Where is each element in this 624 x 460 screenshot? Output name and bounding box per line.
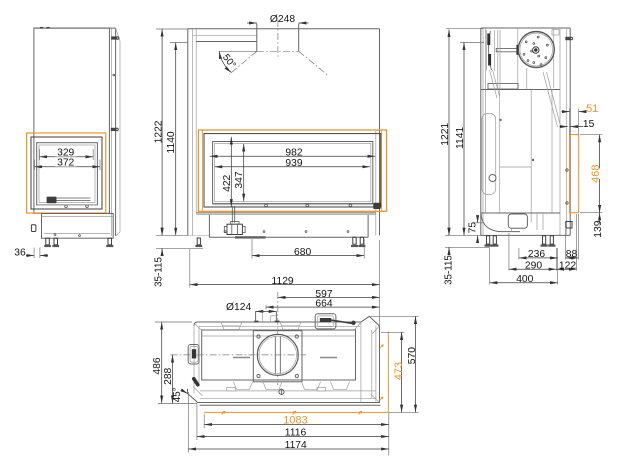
svg-text:288: 288 xyxy=(163,367,174,384)
svg-text:570: 570 xyxy=(407,347,418,364)
svg-text:290: 290 xyxy=(525,261,542,272)
svg-text:35-115: 35-115 xyxy=(444,255,455,285)
svg-text:1129: 1129 xyxy=(272,276,294,287)
svg-text:347: 347 xyxy=(234,171,245,188)
svg-text:Ø124: Ø124 xyxy=(226,302,251,313)
svg-text:1116: 1116 xyxy=(285,427,307,438)
svg-text:139: 139 xyxy=(593,220,604,237)
svg-text:1222: 1222 xyxy=(154,120,165,143)
svg-text:36: 36 xyxy=(14,247,26,258)
svg-text:372: 372 xyxy=(57,158,74,169)
svg-text:Ø248: Ø248 xyxy=(270,14,295,25)
svg-text:88: 88 xyxy=(566,249,578,260)
svg-text:236: 236 xyxy=(528,249,545,260)
svg-text:51: 51 xyxy=(586,103,598,115)
svg-text:400: 400 xyxy=(516,274,533,285)
svg-text:45°: 45° xyxy=(172,387,183,402)
svg-text:468: 468 xyxy=(590,165,602,183)
svg-text:982: 982 xyxy=(285,148,302,159)
svg-text:1083: 1083 xyxy=(283,414,307,426)
svg-text:122: 122 xyxy=(559,261,576,272)
svg-text:35-115: 35-115 xyxy=(154,257,165,287)
svg-text:75: 75 xyxy=(468,222,479,234)
svg-text:15: 15 xyxy=(583,119,595,130)
svg-text:664: 664 xyxy=(315,298,332,309)
svg-text:1140: 1140 xyxy=(166,131,177,153)
svg-text:1221: 1221 xyxy=(440,123,451,146)
svg-text:680: 680 xyxy=(294,247,311,258)
svg-text:486: 486 xyxy=(152,357,163,374)
svg-text:422: 422 xyxy=(222,174,233,191)
svg-text:473: 473 xyxy=(393,362,405,380)
svg-text:1141: 1141 xyxy=(455,127,466,149)
svg-text:1174: 1174 xyxy=(285,440,307,451)
svg-text:939: 939 xyxy=(285,158,302,169)
